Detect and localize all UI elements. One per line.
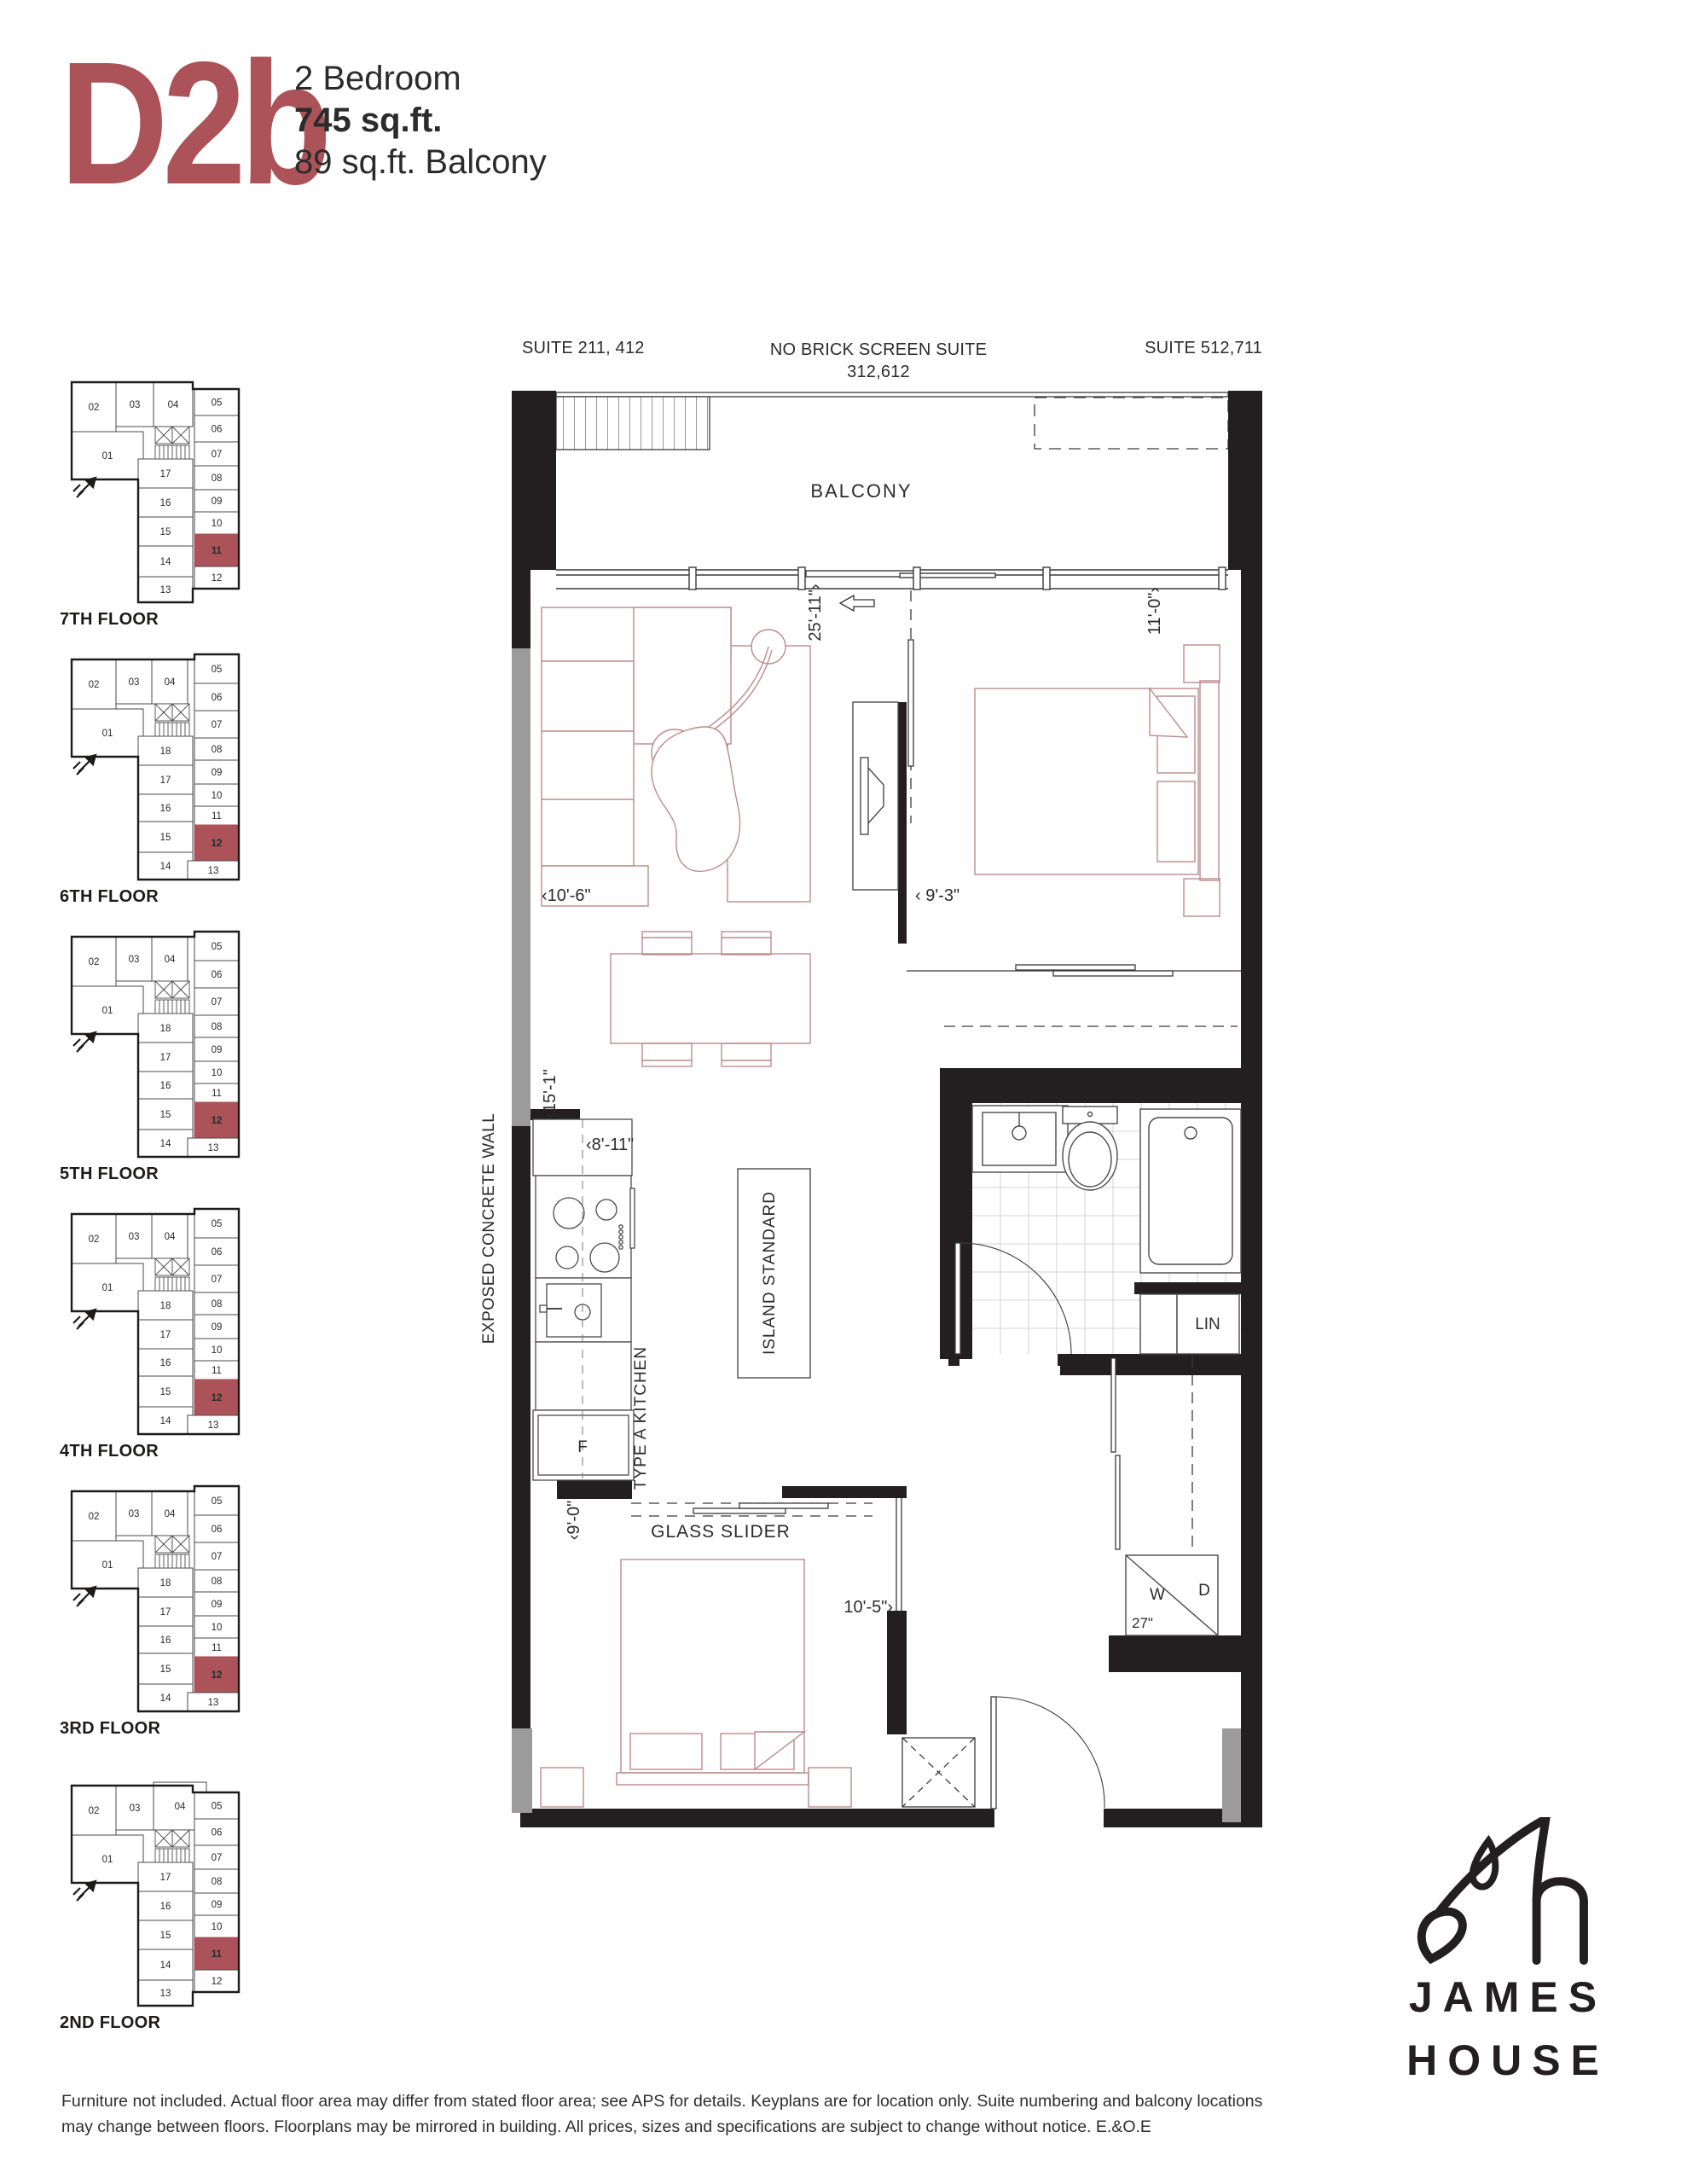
keyplan-unit: 04: [168, 400, 179, 410]
keyplan-unit: 15: [160, 833, 171, 843]
dim-kitchen-run: ‹15'-1": [541, 1069, 559, 1118]
floorplan-page: D2b 2 Bedroom 745 sq.ft. 89 sq.ft. Balco…: [0, 0, 1687, 2184]
oven-handle: [630, 1188, 635, 1248]
keyplan-unit: 08: [212, 473, 223, 484]
keyplan-unit: 07: [212, 720, 223, 730]
dim-master-depth: ‹ 9'-3": [915, 886, 959, 905]
island-label: ISLAND STANDARD: [761, 1191, 779, 1355]
keyplan-unit: 17: [160, 1873, 171, 1883]
dining-chair: [642, 932, 692, 955]
keyplan-unit: 11: [212, 1089, 222, 1099]
suite-label-right: SUITE 512,711: [1117, 339, 1262, 358]
keyplan-unit: 13: [208, 1143, 219, 1153]
north-arrow-icon: [73, 1310, 96, 1329]
keyplan-unit: 06: [212, 1247, 223, 1258]
keyplan-unit: 03: [129, 1232, 140, 1242]
keyplan-unit: 15: [160, 1387, 171, 1397]
keyplan-unit: 01: [102, 1006, 113, 1016]
unit-info: 2 Bedroom 745 sq.ft. 89 sq.ft. Balcony: [294, 58, 547, 183]
keyplan-unit: 12: [212, 1393, 223, 1403]
keyplan-unit: 11: [212, 1366, 222, 1376]
keyplan-floor-label: 2ND FLOOR: [60, 2013, 244, 2033]
dining-chair: [722, 1043, 771, 1066]
keyplan-unit: 13: [160, 585, 171, 595]
keyplan-unit: 09: [212, 497, 223, 507]
keyplan-unit: 12: [212, 839, 223, 849]
brick-screen: [556, 397, 710, 450]
dim-bedroom2-depth: ‹9'-0": [565, 1501, 583, 1540]
keyplan-unit: 04: [165, 955, 176, 965]
keyplan-unit: 07: [212, 1552, 223, 1562]
keyplan-unit: 01: [102, 1855, 113, 1865]
keyplan-6th-floor: 0203040501181716151406070809101112136TH …: [60, 653, 244, 907]
keyplan-unit: 09: [212, 1900, 223, 1910]
keyplan-unit: 10: [212, 1623, 223, 1633]
keyplan-unit: 16: [160, 1358, 171, 1368]
keyplan-unit: 08: [212, 1577, 223, 1587]
pillow: [630, 1734, 702, 1769]
sliding-panel: [1053, 971, 1173, 976]
keyplan-unit: 03: [130, 1804, 141, 1814]
keyplan-unit: 09: [212, 1045, 223, 1055]
keyplan-unit: 02: [89, 957, 100, 967]
keyplan-floor-label: 7TH FLOOR: [60, 610, 244, 630]
keyplan-unit: 05: [212, 665, 223, 675]
keyplan-unit: 16: [160, 498, 171, 508]
linen-label: LIN: [1195, 1316, 1220, 1333]
keyplan-unit: 17: [160, 1330, 171, 1340]
keyplan-unit: 05: [212, 942, 223, 952]
keyplan-unit: 02: [89, 1234, 100, 1245]
exposed-wall-label: EXPOSED CONCRETE WALL: [480, 1113, 498, 1345]
keyplan-unit: 17: [160, 469, 171, 479]
logo-name-line1: JAMES: [1371, 1972, 1644, 2022]
keyplan-3rd-floor: 0203040501181716151406070809101112133RD …: [60, 1484, 244, 1739]
glass-slider-panel: [693, 1508, 786, 1513]
keyplan-unit: 16: [160, 1902, 171, 1912]
dim-kitchen-width: ‹8'-11": [586, 1136, 634, 1154]
keyplan-5th-floor: 0203040501181716151406070809101112135TH …: [60, 930, 244, 1184]
keyplan-unit: 18: [160, 746, 171, 757]
keyplan-unit: 09: [212, 1600, 223, 1610]
keyplan-unit: 12: [212, 1670, 223, 1681]
keyplan-unit: 11: [212, 546, 223, 556]
balcony-rail: [556, 392, 1228, 450]
keyplan-unit: 12: [212, 1116, 223, 1126]
window-wall: [556, 567, 1228, 590]
keyplan-unit: 05: [212, 398, 223, 409]
unit-area: 745 sq.ft.: [294, 100, 547, 142]
keyplan-unit: 08: [212, 1299, 223, 1310]
keyplan-floor-label: 3RD FLOOR: [60, 1719, 244, 1739]
north-arrow-icon: [73, 1881, 96, 1901]
keyplan-unit: 06: [212, 1525, 223, 1535]
keyplan-4th-floor: 0203040501181716151406070809101112134TH …: [60, 1207, 244, 1461]
unit-balcony-area: 89 sq.ft. Balcony: [294, 142, 547, 183]
keyplan-unit: 09: [212, 1322, 223, 1333]
nightstand: [1184, 879, 1220, 916]
dining-chair: [642, 1043, 692, 1066]
james-house-logo-icon: [1416, 1817, 1597, 1969]
dim-washer-dryer: 27": [1132, 1615, 1153, 1631]
keyplan-unit: 16: [160, 804, 171, 814]
keyplan-unit: 13: [208, 1698, 219, 1708]
sliding-panel: [1016, 965, 1135, 970]
keyplan-unit: 15: [160, 1931, 171, 1941]
keyplan-unit: 17: [160, 1053, 171, 1063]
keyplan-unit: 12: [212, 1977, 223, 1987]
glass-slider-panel: [739, 1503, 828, 1508]
keyplan-unit: 02: [89, 1806, 100, 1816]
keyplan-floor-label: 4TH FLOOR: [60, 1442, 244, 1461]
keyplan-unit: 16: [160, 1081, 171, 1091]
keyplan-unit: 18: [160, 1024, 171, 1034]
dryer-label: D: [1198, 1582, 1210, 1600]
keyplan-unit: 13: [208, 1420, 219, 1431]
closet-door-panel: [1116, 1455, 1120, 1549]
dining-table: [611, 954, 810, 1043]
main-floorplan: BALCONY EXPOSED CONCRETE WALL 25'-11"› 1…: [473, 358, 1262, 1843]
keyplan-unit: 15: [160, 1110, 171, 1120]
keyplan-unit: 13: [208, 866, 219, 876]
keyplan-unit: 15: [160, 1664, 171, 1675]
keyplan-unit: 06: [212, 1828, 223, 1838]
dim-bedroom2-width: 10'-5"›: [843, 1598, 893, 1617]
north-arrow-icon: [73, 1587, 96, 1606]
keyplan-unit: 03: [129, 955, 140, 965]
unit-type: 2 Bedroom: [294, 58, 547, 100]
keyplan-unit: 07: [212, 997, 223, 1008]
entry-direction-arrow-icon: [840, 595, 874, 611]
disclaimer-line2: may change between floors. Floorplans ma…: [61, 2114, 1358, 2140]
keyplan-2nd-floor: 02030401171615141305060708091011122ND FL…: [60, 1779, 244, 2033]
dim-living-depth: ‹10'-6": [542, 886, 591, 905]
keyplan-unit: 04: [165, 1232, 176, 1242]
balcony-label: BALCONY: [810, 480, 912, 502]
keyplan-unit: 07: [212, 450, 223, 460]
sliding-panel: [908, 640, 913, 766]
keyplan-unit: 06: [212, 693, 223, 703]
keyplan-unit: 11: [212, 1643, 222, 1653]
fridge-label: F: [577, 1438, 588, 1456]
keyplan-unit: 02: [89, 403, 100, 413]
keyplan-unit: 06: [212, 970, 223, 980]
master-headboard: [1200, 681, 1219, 880]
keyplan-unit: 08: [212, 1877, 223, 1887]
keyplan-unit: 17: [160, 1607, 171, 1618]
keyplan-unit: 10: [212, 519, 223, 529]
logo-name-line2: HOUSE: [1371, 2036, 1644, 2085]
kitchen-cabinets: [533, 1119, 635, 1480]
tub-drain: [1185, 1127, 1197, 1139]
keyplan-unit: 01: [102, 1560, 113, 1571]
disclaimer-line1: Furniture not included. Actual floor are…: [61, 2088, 1358, 2114]
keyplan-unit: 10: [212, 791, 223, 801]
keyplan-unit: 05: [212, 1219, 223, 1229]
keyplan-floor-label: 6TH FLOOR: [60, 887, 244, 907]
keyplan-7th-floor: 02030401171615141305060708091011127TH FL…: [60, 375, 244, 630]
north-arrow-icon: [73, 755, 96, 775]
keyplan-unit: 10: [212, 1068, 223, 1078]
keyplan-unit: 14: [160, 1139, 171, 1149]
keyplan-unit: 01: [102, 451, 113, 462]
screen-dashed-outline: [1035, 398, 1228, 449]
keyplan-unit: 13: [160, 1989, 171, 1999]
north-arrow-icon: [73, 1032, 96, 1052]
keyplan-unit: 11: [212, 1949, 223, 1960]
tv-console: [853, 702, 898, 890]
keyplan-unit: 08: [212, 1022, 223, 1032]
keyplan-unit: 12: [212, 573, 223, 584]
keyplan-unit: 02: [89, 680, 100, 690]
keyplan-unit: 16: [160, 1635, 171, 1646]
keyplan-unit: 11: [212, 811, 222, 822]
keyplan-unit: 06: [212, 425, 223, 435]
suite-label-left: SUITE 211, 412: [522, 339, 645, 358]
keyplan-unit: 07: [212, 1853, 223, 1863]
bathroom-door-swing: [960, 1243, 1071, 1354]
keyplan-unit: 18: [160, 1301, 171, 1311]
closet-door-panel: [1111, 1358, 1116, 1452]
keyplan-unit: 03: [130, 400, 141, 410]
glass-slider-label: GLASS SLIDER: [651, 1522, 791, 1542]
keyplan-unit: 03: [129, 1509, 140, 1519]
coffee-table: [652, 727, 739, 871]
keyplan-unit: 05: [212, 1802, 223, 1812]
kitchen-type-label: TYPE A KITCHEN: [632, 1346, 650, 1490]
bedroom2-headboard: [617, 1773, 809, 1785]
dim-master-width: 11'-0"›: [1145, 587, 1164, 635]
keyplan-unit: 01: [102, 729, 113, 739]
keyplan-unit: 07: [212, 1275, 223, 1285]
keyplan-unit: 01: [102, 1283, 113, 1293]
keyplan-unit: 03: [129, 677, 140, 688]
keyplan-unit: 10: [212, 1922, 223, 1932]
north-arrow-icon: [73, 478, 96, 497]
dining-chair: [722, 932, 771, 955]
keyplan-unit: 17: [160, 775, 171, 786]
rug: [728, 646, 810, 902]
washer-label: W: [1150, 1586, 1165, 1604]
keyplan-unit: 09: [212, 768, 223, 778]
keyplan-unit: 14: [160, 1416, 171, 1426]
bathroom-door: [955, 1243, 960, 1354]
keyplan-unit: 15: [160, 527, 171, 537]
keyplan-unit: 14: [160, 557, 171, 567]
dim-living-width: 25'-11"›: [806, 584, 825, 641]
entry-door: [991, 1697, 996, 1809]
disclaimer: Furniture not included. Actual floor are…: [61, 2088, 1358, 2140]
keyplan-unit: 04: [165, 1509, 176, 1519]
keyplan-unit: 08: [212, 745, 223, 755]
keyplan-unit: 10: [212, 1345, 223, 1356]
sink-faucet: [1012, 1126, 1026, 1140]
nightstand: [541, 1768, 583, 1807]
kitchen-sink: [547, 1284, 601, 1337]
keyplan-unit: 14: [160, 1960, 171, 1971]
nightstand: [1184, 645, 1220, 682]
keyplan-unit: 04: [175, 1802, 186, 1812]
keyplan-unit: 18: [160, 1578, 171, 1589]
nightstand: [809, 1768, 851, 1807]
keyplan-unit: 05: [212, 1496, 223, 1507]
entry-door-swing: [996, 1697, 1104, 1808]
keyplan-floor-label: 5TH FLOOR: [60, 1165, 244, 1184]
keyplan-unit: 14: [160, 862, 171, 872]
page-title: D2b: [60, 36, 326, 211]
keyplan-unit: 04: [165, 677, 176, 688]
pillow: [1157, 781, 1195, 862]
keyplan-unit: 14: [160, 1693, 171, 1704]
keyplan-unit: 02: [89, 1512, 100, 1522]
